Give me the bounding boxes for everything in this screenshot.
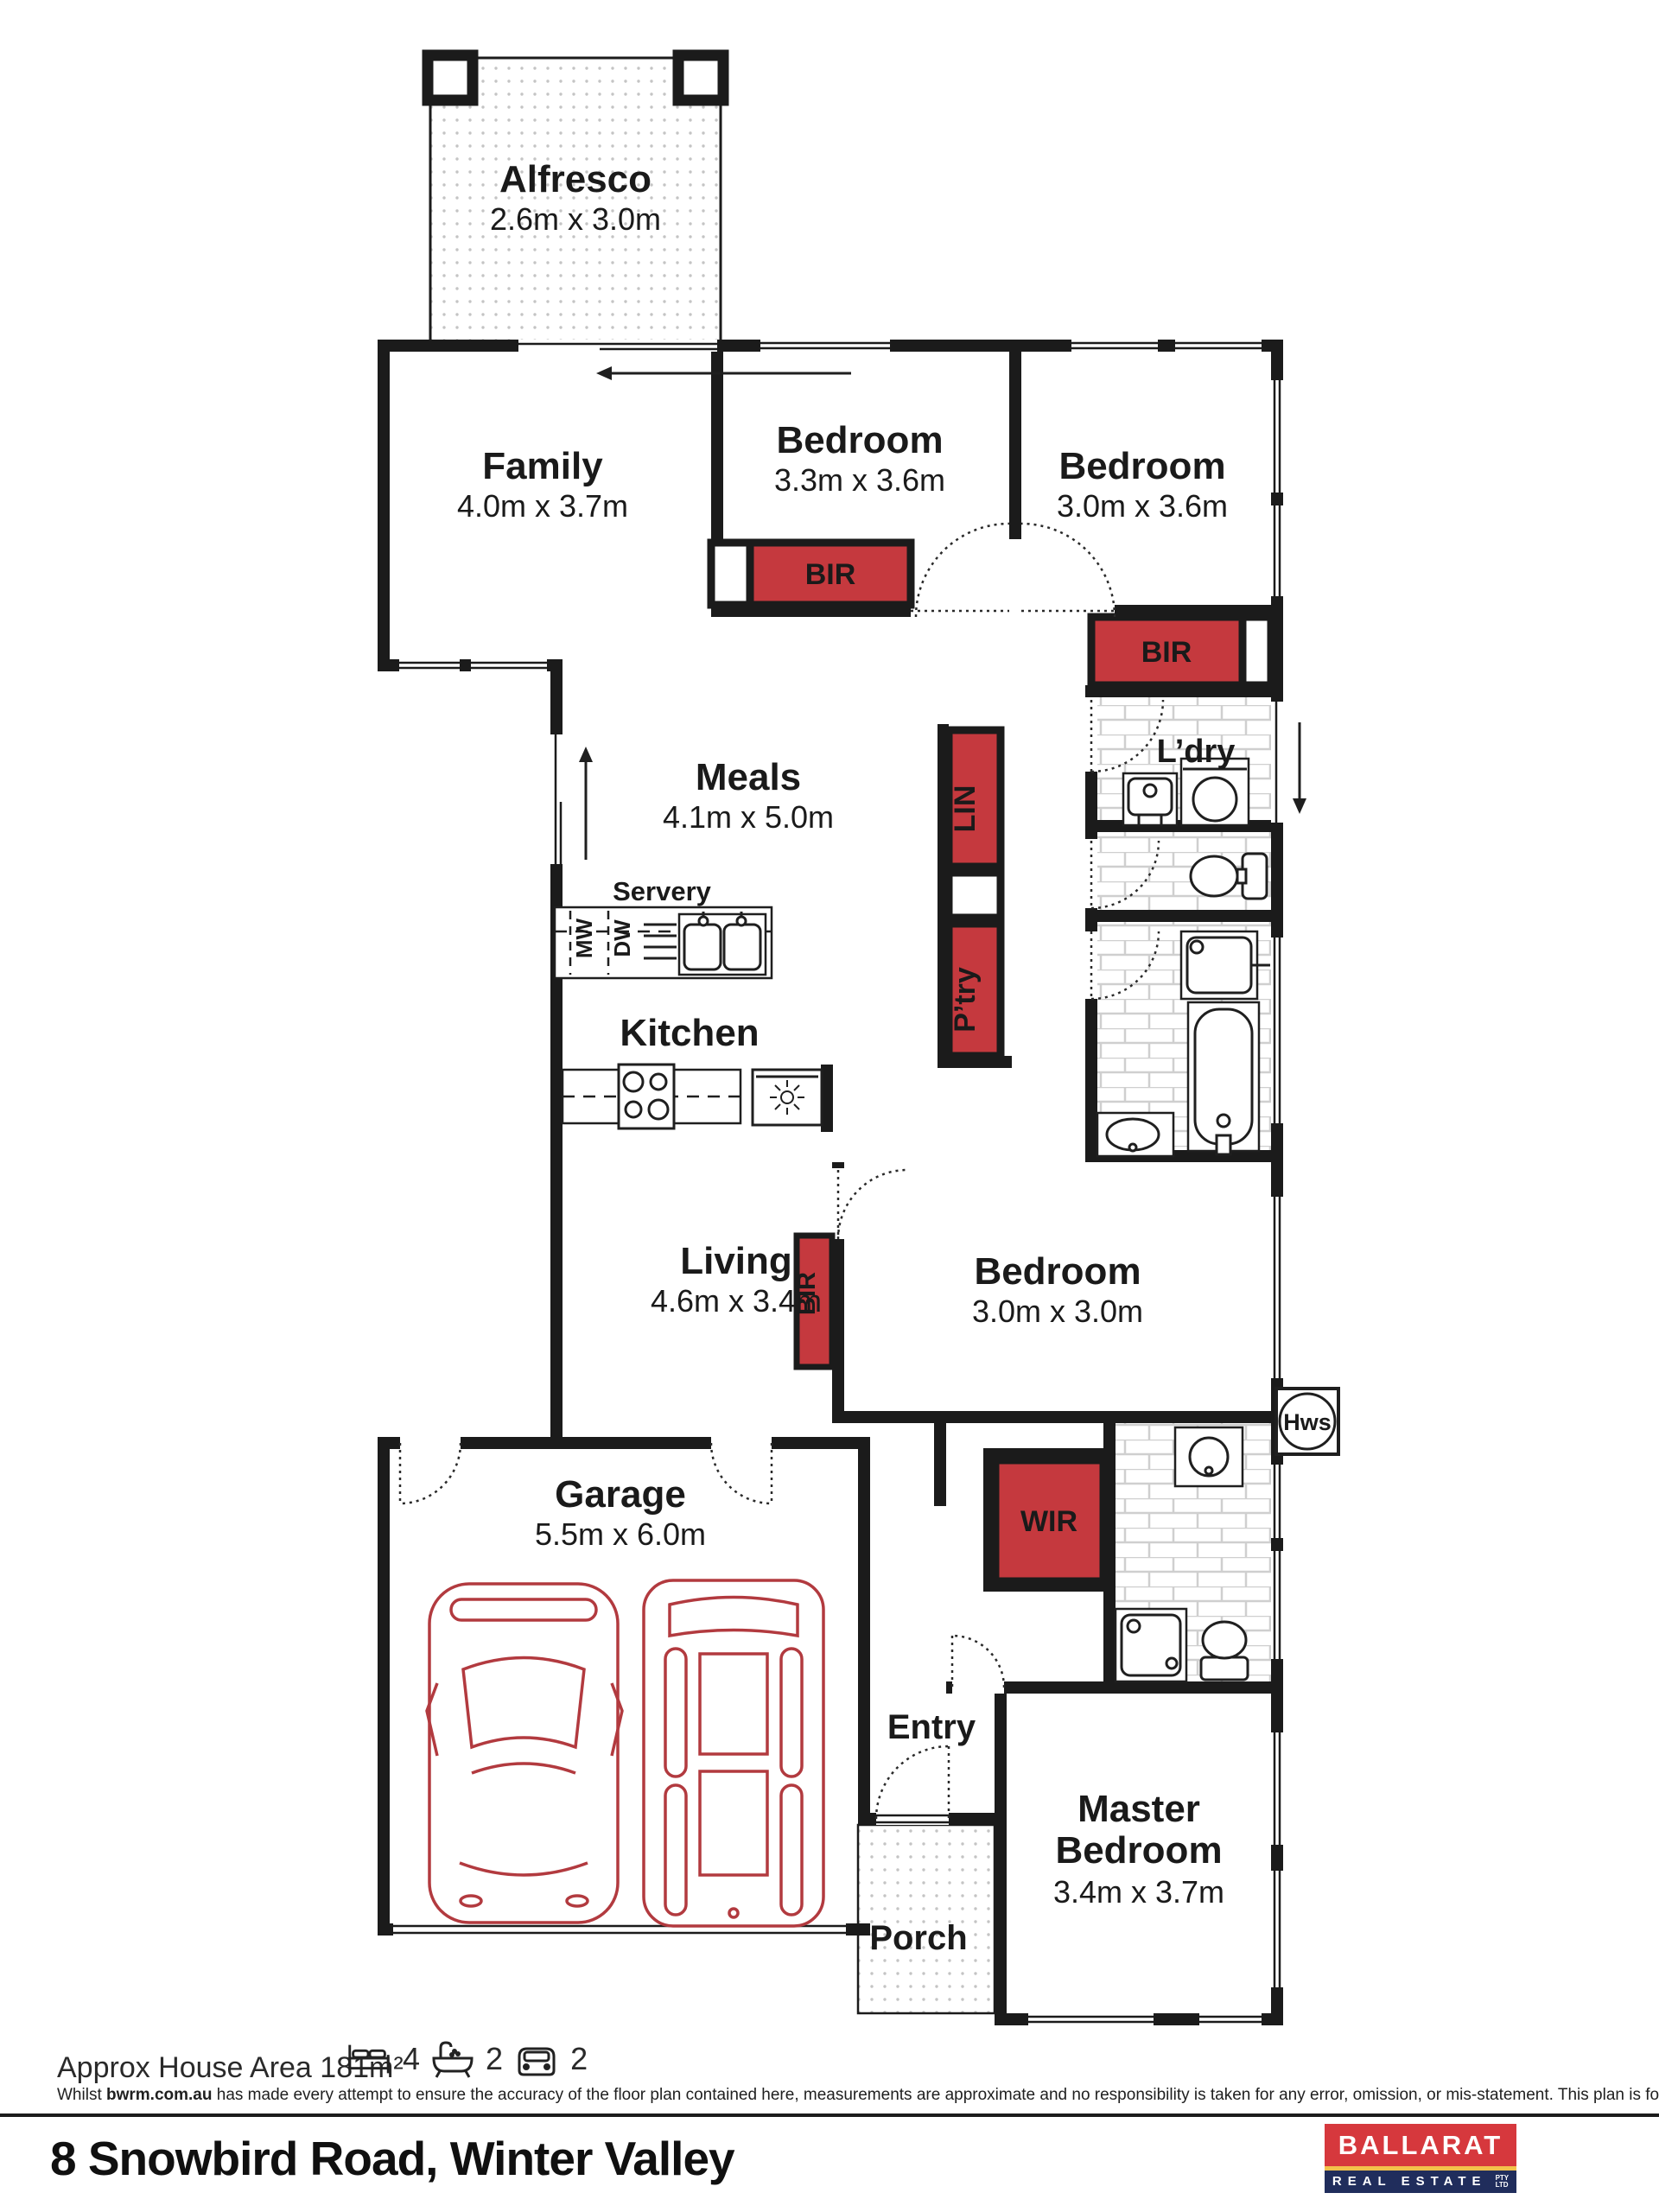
beds-count: 4: [403, 2041, 420, 2077]
svg-text:5.5m x 6.0m: 5.5m x 6.0m: [535, 1516, 706, 1552]
alfresco-deck: [428, 55, 723, 346]
svg-text:3.0m x 3.0m: 3.0m x 3.0m: [972, 1294, 1143, 1329]
car-count-icon: [512, 2039, 562, 2079]
shower: [1181, 931, 1270, 999]
room-label-living: Living: [680, 1240, 792, 1282]
room-label-family: Family: [482, 445, 603, 487]
ensuite-shower: [1116, 1609, 1186, 1681]
ensuite-vanity: [1175, 1427, 1243, 1486]
bathtub: [1188, 1002, 1259, 1154]
door-arc: [952, 1636, 1004, 1688]
pantry-label: P’try: [949, 967, 982, 1033]
car-icon: [644, 1580, 823, 1926]
door-arc: [711, 1443, 772, 1503]
svg-text:4.0m x 3.7m: 4.0m x 3.7m: [457, 488, 628, 524]
vanity: [1097, 1113, 1173, 1156]
door-swings: [400, 524, 1163, 1819]
cubby: [711, 543, 750, 605]
svg-text:3.3m x 3.6m: 3.3m x 3.6m: [774, 462, 945, 498]
toilet: [1191, 854, 1267, 899]
wir-label: WIR: [1020, 1505, 1077, 1538]
room-label-master: Master: [1077, 1788, 1200, 1830]
room-label-laundry: L’dry: [1157, 734, 1236, 770]
baths-count: 2: [486, 2041, 503, 2077]
svg-text:4.1m x 5.0m: 4.1m x 5.0m: [663, 799, 834, 835]
svg-text:3.0m x 3.6m: 3.0m x 3.6m: [1057, 488, 1228, 524]
post-icon: [428, 55, 473, 100]
garage-cars: [427, 1580, 823, 1926]
room-label-alfresco: Alfresco: [499, 158, 652, 200]
logo-name: BALLARAT: [1325, 2124, 1516, 2166]
agency-logo: BALLARAT REAL ESTATE PTYLTD: [1325, 2124, 1516, 2193]
door-arc: [911, 524, 1009, 617]
hws-label: Hws: [1283, 1409, 1332, 1435]
car-icon: [427, 1584, 622, 1923]
door-arc: [1021, 524, 1115, 617]
cubby: [949, 873, 1001, 918]
kitchen-sink: [679, 912, 766, 975]
door-arc: [400, 1443, 461, 1503]
room-label-entry: Entry: [887, 1708, 976, 1746]
bir-label: BIR: [793, 1272, 821, 1315]
svg-text:3.4m x 3.7m: 3.4m x 3.7m: [1053, 1874, 1224, 1910]
door-arc: [876, 1746, 949, 1819]
floorplan-drawing: Alfresco 2.6m x 3.0m Family 4.0m x 3.7m …: [0, 0, 1659, 2212]
property-address: 8 Snowbird Road, Winter Valley: [50, 2131, 734, 2186]
room-label-kitchen: Kitchen: [620, 1012, 759, 1054]
cooktop: [619, 1065, 674, 1128]
fan-icon: [770, 1080, 804, 1115]
bath-icon: [429, 2039, 477, 2079]
logo-subtitle: REAL ESTATE: [1332, 2174, 1487, 2189]
divider-line: [0, 2113, 1659, 2117]
property-stats: 4 2 2: [344, 2039, 588, 2079]
dw-label: DW: [609, 919, 635, 957]
room-label-meals: Meals: [696, 756, 801, 798]
mw-label: MW: [571, 918, 597, 958]
bir-label: BIR: [1141, 636, 1192, 669]
laundry-trough: [1123, 773, 1177, 825]
svg-text:Bedroom: Bedroom: [1055, 1829, 1222, 1872]
room-label-bedroom2: Bedroom: [776, 419, 943, 461]
room-label-bedroom4: Bedroom: [974, 1250, 1141, 1293]
post-icon: [678, 55, 723, 100]
kitchen-bench: [563, 1065, 822, 1128]
floorplan-page: Alfresco 2.6m x 3.0m Family 4.0m x 3.7m …: [0, 0, 1659, 2212]
cubby: [1243, 617, 1271, 685]
disclaimer-text: Whilst bwrm.com.au has made every attemp…: [57, 2086, 1612, 2105]
room-label-bedroom3: Bedroom: [1058, 445, 1225, 487]
bed-icon: [344, 2039, 394, 2079]
cars-count: 2: [570, 2041, 588, 2077]
room-label-garage: Garage: [555, 1473, 686, 1516]
lin-label: LIN: [949, 785, 982, 833]
fridge: [753, 1070, 822, 1125]
bir-label: BIR: [805, 558, 856, 591]
room-label-porch: Porch: [869, 1919, 967, 1957]
door-arc: [838, 1170, 907, 1239]
room-label-servery: Servery: [613, 876, 712, 906]
ensuite-toilet: [1201, 1622, 1248, 1680]
svg-text:2.6m x 3.0m: 2.6m x 3.0m: [490, 201, 661, 237]
